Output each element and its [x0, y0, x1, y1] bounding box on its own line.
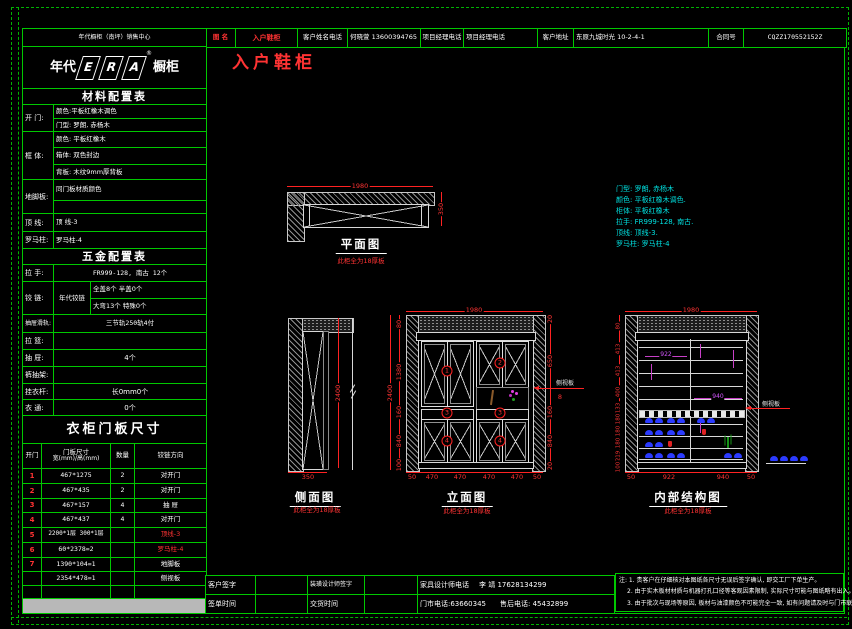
elev-dim: 20 — [547, 461, 554, 471]
shoe-base-line — [766, 463, 806, 464]
hardware-label: 铰 链: — [23, 282, 53, 315]
door-row-no: 1 — [23, 469, 41, 483]
leaf-decor-icon — [512, 398, 515, 401]
material-row: 颜色:平板红橡木调色 — [54, 105, 206, 118]
plan-cabinet-body — [303, 204, 429, 228]
arrow-left-icon — [745, 406, 751, 410]
door-row-size: 467*435 — [42, 484, 110, 498]
door-row-size: 467*437 — [42, 513, 110, 527]
hardware-hinge-brand: 年代铰链 — [54, 282, 90, 315]
side-dim-height: 2400 — [335, 384, 342, 403]
internal-shelf — [639, 459, 743, 460]
customer-sign-field — [256, 576, 307, 594]
door-row-size: 1390*104=1 — [42, 558, 110, 572]
drawing-name-label: 图 名 — [206, 29, 235, 47]
hardware-table-title: 五金配置表 — [23, 249, 206, 265]
elev-dim: 840 — [396, 434, 403, 448]
elev-dim: 470 — [453, 474, 467, 481]
vase-icon — [668, 441, 672, 447]
hardware-value: 三节轨250轨4付 — [54, 315, 206, 333]
brand-logo: 年代 E R A ® 橱柜 — [23, 47, 206, 89]
door-row-hinge: 罗马柱-4 — [135, 543, 206, 557]
door-number-mark: 3 — [442, 408, 453, 419]
side-panel-callout-value: 8 — [557, 394, 563, 401]
sign-date-label: 签单时间 — [206, 595, 255, 613]
material-group-label: 地脚板: — [23, 180, 53, 214]
customer-phone-value: 何晓萱 13600394765 — [348, 29, 420, 47]
store-phone-value: 门市电话:63660345 — [420, 600, 486, 608]
logo-text-pre: 年代 — [50, 61, 76, 76]
logo-text-post: 橱柜 — [153, 61, 179, 76]
shoe-icon — [645, 430, 653, 435]
door-row-hinge: 对开门 — [135, 513, 206, 527]
decor-designer-sign-field — [365, 576, 417, 594]
internal-dim: 180 — [616, 413, 622, 426]
shoe-icon — [724, 453, 732, 458]
material-row: 颜色: 平板红橡木 — [54, 132, 206, 147]
flower-decor-icon — [511, 390, 514, 393]
material-table-title: 材料配置表 — [23, 89, 206, 105]
elev-door-upper — [502, 341, 529, 388]
plan-thickness-note: 此柜全为18厚板 — [337, 255, 384, 265]
internal-crown-molding — [635, 332, 749, 341]
hardware-label: 衣 通: — [23, 400, 53, 416]
customer-phone-label: 客户姓名电话 — [298, 29, 347, 47]
door-number-mark: 4 — [442, 436, 453, 447]
door-row-no: 4 — [23, 513, 41, 527]
hardware-value: 大弯13个 特殊0个 — [91, 299, 206, 315]
door-row-qty — [111, 543, 134, 557]
door-row-qty: 2 — [111, 469, 134, 483]
material-row: 箱体: 双色封边 — [54, 148, 206, 163]
store-phone-cell: 门市电话:63660345 售后电话: 45432899 — [418, 595, 614, 613]
spec-note: 颜色: 平板红橡木调色. — [616, 197, 686, 204]
elev-dim: 50 — [407, 474, 417, 481]
elev-door-lower — [502, 419, 529, 464]
shoe-icon — [697, 418, 705, 423]
hardware-value — [54, 333, 206, 350]
vase-icon — [702, 429, 706, 435]
contract-no-label: 合同号 — [709, 29, 743, 47]
door-number-mark: 2 — [495, 358, 506, 369]
panel-bottom-strip — [22, 598, 207, 614]
signature-block: 客户签字 装璜设计师签字 家具设计师电话 李 靖 17628134299 签单时… — [205, 575, 615, 614]
door-col-header: 门板尺寸 宽(mm)/高(mm) — [42, 444, 110, 468]
spec-note: 顶线: 顶线-3. — [616, 230, 658, 237]
door-size-header-line2: 宽(mm)/高(mm) — [53, 456, 100, 463]
door-row-no: 2 — [23, 484, 41, 498]
elev-dim: 840 — [547, 434, 554, 448]
dealer-name: 年代橱柜（南坪）销售中心 — [23, 29, 206, 47]
hardware-value: 全盖8个 半盖0个 — [91, 282, 206, 298]
sign-date-field — [256, 595, 307, 613]
arrow-left-icon — [533, 386, 539, 390]
door-col-header: 开门 — [23, 444, 41, 468]
plan-view-label: 平面图 — [336, 236, 387, 254]
hardware-label: 抽 屉: — [23, 350, 53, 367]
door-row-no: 6 — [23, 543, 41, 557]
door-row-size: 2354*478=1 — [42, 572, 110, 586]
internal-base-plinth — [637, 462, 747, 469]
material-row: 背板: 木纹9mm厚背板 — [54, 165, 206, 180]
shoe-icon — [667, 430, 675, 435]
door-row-size: 2200*1层 300*1层 — [42, 528, 110, 542]
shoe-icon — [645, 418, 653, 423]
logo-letter-e: E — [75, 56, 101, 80]
footer-note: 3. 由于批次与现场等原因, 板材与油漆颜色不可能完全一致, 如有问题请及时与门… — [619, 598, 840, 609]
elev-dim: 470 — [425, 474, 439, 481]
door-number-mark: 3 — [495, 408, 506, 419]
logo-row: 年代 E R A ® 橱柜 — [22, 46, 207, 90]
contract-no-value: CQZZ170552152Z — [744, 29, 846, 47]
left-dashed-line — [18, 7, 19, 623]
spec-note: 柜体: 平板红橡木 — [616, 208, 670, 215]
elev-dim: 470 — [482, 474, 496, 481]
door-table-title: 衣柜门板尺寸 — [23, 416, 206, 444]
internal-dim: 50 — [626, 474, 636, 481]
shelf-dim-line — [733, 350, 734, 368]
hardware-value: FR999-128, 南古 12个 — [54, 265, 206, 282]
material-row: 同门板材质颜色 — [54, 180, 206, 200]
door-row-qty: 4 — [111, 499, 134, 513]
door-size-table: 开门 门板尺寸 宽(mm)/高(mm) 数量 铰链方向 1 467*1275 2… — [22, 443, 207, 587]
material-group-door: 开 门: 颜色:平板红橡木调色 门型: 罗朗, 赤杨木 — [22, 104, 207, 133]
aftersales-phone-value: 售后电话: 45432899 — [500, 600, 568, 608]
internal-dim: 180 — [616, 437, 622, 450]
door-row-qty — [111, 558, 134, 572]
furniture-designer-value: 李 靖 17628134299 — [479, 581, 546, 589]
material-group-label: 开 门: — [23, 105, 53, 132]
internal-shelf — [639, 347, 743, 348]
footer-note: 2. 由于实木板材材质与机器打孔口径等客观因素限制, 实际尺寸可能与图纸略有出入… — [619, 586, 840, 597]
logo-registered-mark: ® — [146, 51, 152, 58]
sheet-title: 入户鞋柜 — [232, 48, 316, 73]
elev-dim: 1380 — [396, 363, 403, 382]
project-manager-label: 项目经理电话 — [421, 29, 463, 47]
furniture-designer-label: 家具设计师电话 — [420, 581, 469, 589]
elev-dim: 160 — [547, 405, 554, 419]
door-row-qty: 2 — [111, 484, 134, 498]
spec-note: 拉手: FR999-128, 南古. — [616, 219, 693, 226]
hardware-value: 0个 — [54, 400, 206, 416]
side-panel-callout-label: 侧视板 — [762, 399, 780, 408]
side-panel-callout-line — [750, 408, 790, 409]
door-row-qty: 4 — [111, 513, 134, 527]
door-row-hinge: 对开门 — [135, 469, 206, 483]
door-number-mark: 1 — [442, 366, 453, 377]
internal-shelf — [639, 373, 743, 374]
furniture-designer-cell: 家具设计师电话 李 靖 17628134299 — [418, 576, 614, 594]
shelf-dim-line — [700, 344, 701, 358]
elev-dim-top: 1980 — [465, 307, 484, 314]
elev-dim: 50 — [532, 474, 542, 481]
plan-cabinet-end-line — [309, 204, 310, 226]
logo-letter-a: A — [121, 56, 147, 80]
hardware-label: 拉 篮: — [23, 333, 53, 350]
elev-dim: 100 — [396, 458, 403, 472]
internal-dim: 100 — [616, 461, 622, 474]
door-row-hinge: 侧视板 — [135, 572, 206, 586]
plan-dim-depth: 350 — [438, 202, 445, 216]
internal-shelf — [639, 424, 743, 425]
material-group-plinth: 地脚板: 同门板材质颜色 — [22, 179, 207, 215]
side-cabinet-edge — [323, 331, 329, 470]
shoe-icon — [667, 418, 675, 423]
door-row-hinge: 地脚板 — [135, 558, 206, 572]
internal-dim: 180 — [616, 425, 622, 438]
material-group-label: 顶 线: — [23, 214, 53, 232]
material-row: 罗马柱-4 — [54, 232, 206, 249]
material-group-carcass: 框 体: 颜色: 平板红橡木 箱体: 双色封边 背板: 木纹9mm厚背板 — [22, 131, 207, 181]
hardware-value: 长0mm0个 — [54, 384, 206, 400]
elev-dim: 470 — [510, 474, 524, 481]
side-cabinet-panel — [302, 331, 324, 470]
shoe-icon — [645, 442, 653, 447]
customer-address-label: 客户地址 — [538, 29, 573, 47]
hardware-row-hinge: 铰 链: 年代铰链 全盖8个 半盖0个 大弯13个 特殊0个 — [22, 281, 207, 316]
shoe-icon — [645, 453, 653, 458]
decor-designer-sign-label: 装璜设计师签字 — [308, 576, 364, 594]
door-row-qty — [111, 572, 134, 586]
material-group-label: 框 体: — [23, 132, 53, 180]
internal-shelf — [639, 448, 743, 449]
shelf-dim-line — [651, 364, 652, 380]
spec-note: 门型: 罗朗, 赤杨木 — [616, 186, 674, 193]
project-manager-value: 项目经理电话 — [464, 29, 537, 47]
internal-dim-chain-bottom — [625, 472, 757, 473]
internal-dim: 413 — [616, 365, 622, 378]
door-row-size: 467*157 — [42, 499, 110, 513]
elev-base-plinth — [418, 462, 534, 469]
footer-note: 注: 1. 贵客户在仔细核对本图纸各尺寸无误后签字确认, 即交工厂下单生产。 — [619, 575, 840, 586]
customer-address-value: 东原九城时光 10-2-4-1 — [574, 29, 708, 47]
material-row: 顶 线-3 — [54, 214, 206, 232]
plan-cabinet-end-line — [421, 204, 422, 226]
title-bar: 图 名 入户鞋柜 客户姓名电话 何晓萱 13600394765 项目经理电话 项… — [205, 28, 847, 48]
spec-note: 罗马柱: 罗马柱-4 — [616, 241, 670, 248]
elev-crown-molding — [416, 332, 536, 341]
elev-open-niche — [476, 387, 529, 410]
footer-notes-box: 注: 1. 贵客户在仔细核对本图纸各尺寸无误后签字确认, 即交工厂下单生产。 2… — [615, 573, 844, 612]
door-col-header: 数量 — [111, 444, 134, 468]
shoe-icon — [790, 456, 798, 461]
door-table-title-row: 衣柜门板尺寸 — [22, 415, 207, 445]
side-dim-depth: 350 — [301, 474, 315, 481]
internal-thickness-note: 此柜全为18厚板 — [664, 505, 711, 515]
cad-sheet: 图 名 入户鞋柜 客户姓名电话 何晓萱 13600394765 项目经理电话 项… — [0, 0, 852, 629]
internal-dim: 922 — [662, 474, 676, 481]
internal-dim: 940 — [716, 474, 730, 481]
material-group-label: 罗马柱: — [23, 232, 53, 249]
hardware-label: 抽屉滑轨: — [23, 315, 53, 333]
material-group-crown: 顶 线: 顶 线-3 — [22, 213, 207, 233]
hardware-label: 挂衣杆: — [23, 384, 53, 400]
delivery-date-field — [365, 595, 417, 613]
internal-shelf — [639, 360, 743, 361]
hardware-value: 4个 — [54, 350, 206, 367]
internal-dim: 400 — [616, 386, 622, 399]
delivery-date-label: 交货时间 — [308, 595, 364, 613]
shelf-dim: 922 — [659, 352, 672, 358]
side-panel-callout-line — [538, 388, 584, 389]
door-row-qty — [111, 528, 134, 542]
internal-dim-top: 1980 — [682, 307, 701, 314]
plant-icon — [727, 437, 729, 448]
door-row-no: 7 — [23, 558, 41, 572]
door-row-no: 5 — [23, 528, 41, 542]
internal-shelf — [639, 399, 743, 400]
side-thickness-note: 此柜全为18厚板 — [293, 504, 340, 514]
elevation-thickness-note: 此柜全为18厚板 — [443, 505, 490, 515]
shoe-icon — [667, 453, 675, 458]
drawing-name-value: 入户鞋柜 — [236, 29, 297, 47]
shoe-icon — [770, 456, 778, 461]
elev-dim-overall: 2400 — [387, 384, 394, 403]
plan-dim-width: 1980 — [351, 183, 370, 190]
shelf-dim: 940 — [711, 394, 724, 400]
door-row-size: 467*1275 — [42, 469, 110, 483]
internal-dim: 50 — [746, 474, 756, 481]
elev-dim: 650 — [547, 354, 554, 368]
internal-dim: 413 — [616, 343, 622, 356]
bottom-dashed-line — [11, 617, 847, 618]
door-row-no: 3 — [23, 499, 41, 513]
door-number-mark: 4 — [495, 436, 506, 447]
internal-dentil-band — [639, 410, 745, 418]
door-row-no — [23, 572, 41, 586]
door-row-hinge: 对开门 — [135, 484, 206, 498]
hardware-value — [54, 367, 206, 384]
hardware-label: 裤抽架: — [23, 367, 53, 384]
internal-shelf — [639, 386, 743, 387]
elev-dim: 80 — [396, 319, 403, 329]
elev-dim: 160 — [396, 405, 403, 419]
dealer-row: 年代橱柜（南坪）销售中心 — [22, 28, 207, 48]
hardware-row-slide: 抽屉滑轨: 三节轨250轨4付 — [22, 314, 207, 334]
side-panel-callout-label: 侧视板 — [556, 378, 574, 387]
logo-letter-r: R — [98, 56, 124, 80]
door-col-header: 铰链方向 — [135, 444, 206, 468]
elev-dim: 20 — [547, 314, 554, 324]
hardware-label: 拉 手: — [23, 265, 53, 282]
door-row-hinge: 抽 屉 — [135, 499, 206, 513]
door-row-size: 60*2378=2 — [42, 543, 110, 557]
internal-dim: 80 — [616, 322, 622, 331]
customer-sign-label: 客户签字 — [206, 576, 255, 594]
door-row-hinge: 顶线-3 — [135, 528, 206, 542]
